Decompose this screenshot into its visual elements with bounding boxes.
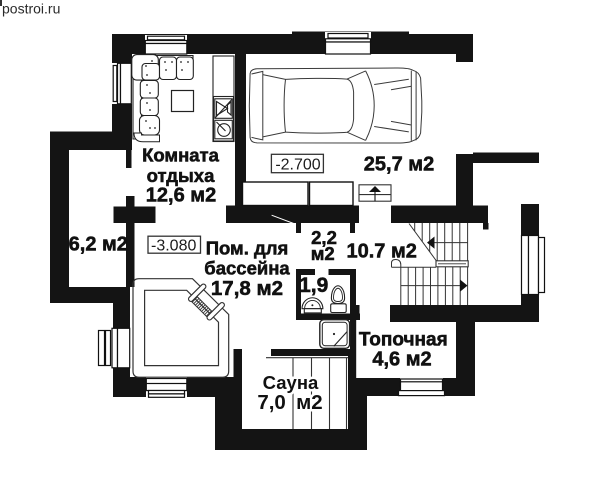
svg-text:postroi.ru: postroi.ru xyxy=(2,1,60,17)
svg-text:25,7 м2: 25,7 м2 xyxy=(364,154,434,176)
svg-text:м2: м2 xyxy=(311,243,335,264)
svg-text:17,8 м2: 17,8 м2 xyxy=(211,277,283,300)
svg-text:6,2 м2: 6,2 м2 xyxy=(69,234,128,256)
svg-text:Сауна: Сауна xyxy=(263,372,319,393)
svg-text:бассейна: бассейна xyxy=(204,258,290,279)
svg-text:7,0 м2: 7,0 м2 xyxy=(257,391,322,414)
svg-text:-2.700: -2.700 xyxy=(275,156,320,173)
svg-text:Комната: Комната xyxy=(142,145,220,166)
svg-text:Топочная: Топочная xyxy=(359,330,448,351)
svg-text:Пом. для: Пом. для xyxy=(206,238,289,259)
svg-text:4,6 м2: 4,6 м2 xyxy=(372,349,431,371)
svg-text:отдыха: отдыха xyxy=(147,165,215,186)
svg-text:10.7 м2: 10.7 м2 xyxy=(347,241,417,263)
svg-text:-3.080: -3.080 xyxy=(151,238,196,255)
svg-text:1,9: 1,9 xyxy=(299,274,328,297)
svg-text:12,6 м2: 12,6 м2 xyxy=(146,185,216,207)
